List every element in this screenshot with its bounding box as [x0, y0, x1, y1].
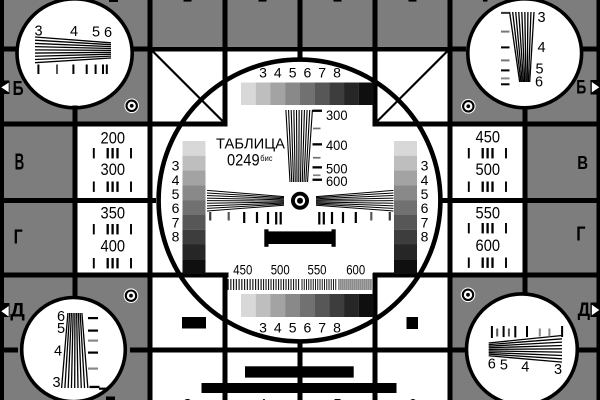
svg-text:8: 8: [172, 229, 180, 245]
svg-text:4: 4: [70, 24, 78, 40]
svg-text:Д: Д: [10, 300, 25, 322]
svg-text:3: 3: [259, 65, 267, 81]
svg-text:3: 3: [52, 375, 60, 391]
svg-text:4: 4: [274, 65, 282, 81]
svg-text:400: 400: [101, 237, 126, 256]
svg-text:450: 450: [476, 128, 501, 147]
svg-text:5: 5: [333, 396, 341, 400]
svg-text:3: 3: [554, 362, 562, 378]
svg-text:Д: Д: [578, 299, 591, 321]
svg-text:450: 450: [233, 262, 252, 277]
svg-text:4: 4: [274, 320, 282, 336]
svg-text:500: 500: [271, 262, 290, 277]
svg-text:4: 4: [258, 396, 266, 400]
svg-text:6: 6: [488, 357, 496, 373]
svg-text:4: 4: [537, 40, 545, 56]
svg-text:3: 3: [259, 320, 267, 336]
svg-text:8: 8: [333, 320, 341, 336]
svg-text:500: 500: [476, 160, 501, 179]
svg-text:Г: Г: [576, 223, 585, 245]
svg-text:3: 3: [34, 24, 42, 40]
svg-text:6: 6: [304, 65, 312, 81]
svg-text:6: 6: [535, 75, 543, 91]
svg-text:7: 7: [318, 320, 326, 336]
svg-text:0249: 0249: [227, 151, 260, 169]
svg-text:5: 5: [289, 65, 297, 81]
svg-text:8: 8: [333, 65, 341, 81]
svg-text:5: 5: [500, 358, 508, 374]
svg-text:3: 3: [537, 10, 545, 26]
svg-text:300: 300: [101, 160, 126, 179]
svg-text:4: 4: [521, 360, 529, 376]
svg-text:В: В: [15, 149, 25, 175]
svg-text:400: 400: [326, 137, 348, 153]
svg-text:5: 5: [92, 25, 100, 41]
svg-text:300: 300: [326, 107, 348, 123]
svg-text:550: 550: [476, 203, 501, 222]
svg-text:7: 7: [318, 65, 326, 81]
svg-text:5: 5: [289, 320, 297, 336]
svg-text:В: В: [577, 152, 588, 173]
svg-text:Г: Г: [14, 227, 23, 249]
svg-text:600: 600: [346, 262, 365, 277]
svg-text:6: 6: [304, 320, 312, 336]
svg-text:Б: Б: [13, 77, 24, 100]
svg-text:бис: бис: [260, 153, 273, 163]
svg-text:6: 6: [408, 396, 416, 400]
svg-text:350: 350: [101, 204, 126, 223]
svg-text:4: 4: [54, 344, 62, 360]
svg-text:550: 550: [308, 262, 327, 277]
svg-text:5: 5: [57, 321, 65, 337]
svg-text:600: 600: [326, 173, 348, 189]
svg-text:Б: Б: [576, 77, 586, 99]
svg-text:3: 3: [183, 396, 191, 400]
svg-text:8: 8: [421, 229, 429, 245]
svg-text:200: 200: [101, 128, 126, 147]
svg-text:ТАБЛИЦА: ТАБЛИЦА: [216, 135, 286, 152]
svg-text:600: 600: [476, 236, 501, 255]
svg-text:6: 6: [104, 25, 112, 41]
